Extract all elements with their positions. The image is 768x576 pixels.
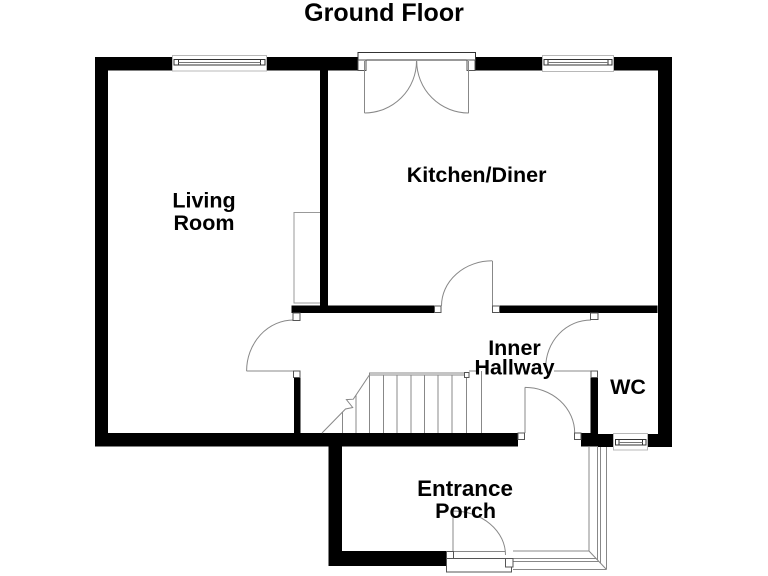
svg-text:Kitchen/Diner: Kitchen/Diner bbox=[407, 163, 547, 187]
svg-text:Porch: Porch bbox=[435, 499, 496, 523]
svg-text:Room: Room bbox=[174, 211, 235, 235]
svg-text:Entrance: Entrance bbox=[417, 476, 513, 501]
svg-text:Living: Living bbox=[172, 188, 235, 212]
svg-text:Hallway: Hallway bbox=[474, 356, 554, 380]
svg-text:WC: WC bbox=[610, 375, 646, 399]
svg-text:Ground Floor: Ground Floor bbox=[304, 0, 464, 27]
